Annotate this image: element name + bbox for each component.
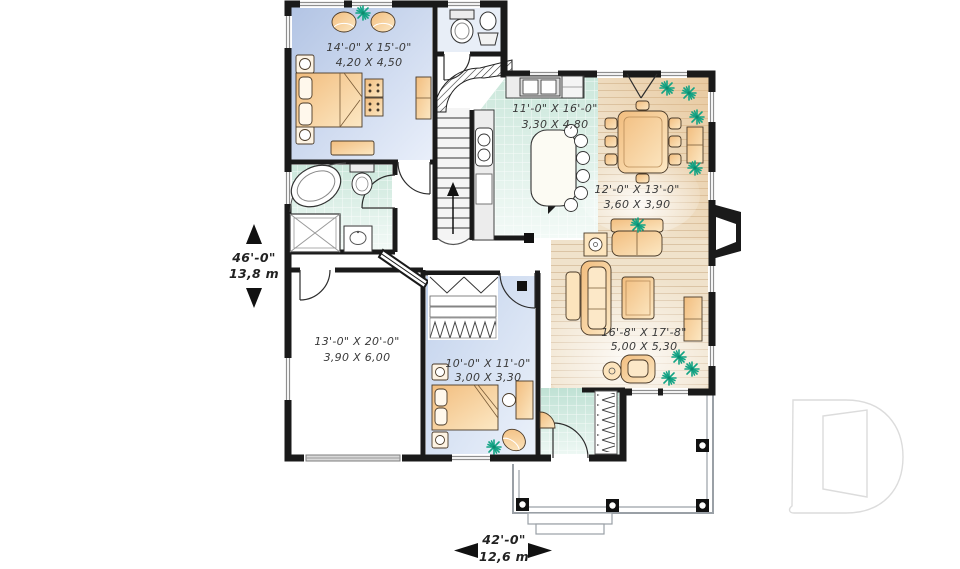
coffee-table-icon xyxy=(622,277,654,319)
window-icon xyxy=(300,0,344,8)
d-logo-watermark xyxy=(790,400,903,513)
porch-step xyxy=(528,513,612,524)
garage-door xyxy=(304,454,402,462)
end-table-icon xyxy=(584,233,607,256)
garage-dim-imperial: 13'-0" X 20'-0" xyxy=(314,335,399,348)
bedroom2-dim-metric: 3,00 X 3,30 xyxy=(455,371,522,384)
dining-table-icon xyxy=(618,111,668,173)
depth-dim-imperial: 46'-0" xyxy=(231,250,275,265)
floor-plan-page: 14'-0" X 15'-0" 4,20 X 4,50 11'-0" X 16'… xyxy=(0,0,960,569)
window-icon xyxy=(708,92,716,122)
sink-icon xyxy=(480,12,496,30)
tall-dresser-icon xyxy=(416,77,431,119)
toilet-icon xyxy=(350,164,374,195)
master-bedroom-dim-imperial: 14'-0" X 15'-0" xyxy=(326,41,411,54)
chair-icon xyxy=(669,118,681,129)
dimension-vertical: 46'-0" 13,8 m xyxy=(229,224,279,308)
arrow-right-icon xyxy=(528,543,552,558)
stool-icon xyxy=(575,187,588,200)
chair-icon xyxy=(605,154,617,165)
shower-icon xyxy=(290,214,340,252)
window-icon xyxy=(352,0,392,8)
dimension-horizontal: 42'-0" 12,6 m xyxy=(454,532,552,564)
refrigerator-icon xyxy=(562,76,583,98)
bed-icon xyxy=(296,73,362,127)
post xyxy=(517,281,527,291)
living-room-dim-metric: 5,00 X 5,30 xyxy=(611,340,678,353)
bed-icon xyxy=(432,385,498,430)
window-icon xyxy=(284,172,292,204)
chair-icon xyxy=(669,154,681,165)
dining-room-dim-metric: 3,60 X 3,90 xyxy=(604,198,671,211)
bedroom2-dim-imperial: 10'-0" X 11'-0" xyxy=(445,357,530,370)
window-icon xyxy=(452,454,490,462)
window-icon xyxy=(708,346,716,366)
sofa-icon xyxy=(581,261,611,335)
chair-icon xyxy=(669,136,681,147)
round-table-icon xyxy=(603,362,621,380)
window-icon xyxy=(284,358,292,400)
toilet-icon xyxy=(450,10,474,19)
window-icon xyxy=(663,388,688,396)
chair-icon xyxy=(605,136,617,147)
arrow-left-icon xyxy=(454,543,478,558)
stool-icon xyxy=(577,170,590,183)
nightstand-icon xyxy=(432,432,448,448)
window-icon xyxy=(708,266,716,292)
dishwasher-icon xyxy=(476,174,492,204)
vanity-sink-icon xyxy=(344,226,372,252)
closet-rod-icon xyxy=(430,318,496,338)
armchair-icon xyxy=(621,355,655,383)
ottoman-icon xyxy=(566,272,580,320)
stool-icon xyxy=(575,135,588,148)
dining-room-dim-imperial: 12'-0" X 13'-0" xyxy=(594,183,679,196)
width-dim-imperial: 42'-0" xyxy=(481,532,525,547)
window-icon xyxy=(448,0,480,8)
buffet-icon xyxy=(687,127,703,163)
nightstand-icon xyxy=(296,126,314,144)
arrow-down-icon xyxy=(246,288,262,308)
kitchen-sink-icon xyxy=(476,128,493,166)
tv-cabinet-icon xyxy=(684,297,702,341)
window-icon xyxy=(632,388,658,396)
window-icon xyxy=(284,16,292,48)
chair-icon xyxy=(636,101,649,110)
stool-icon xyxy=(565,199,578,212)
kitchen-dim-metric: 3,30 X 4,80 xyxy=(522,118,589,131)
armchair-icon xyxy=(332,12,356,32)
floor-plan-canvas: 14'-0" X 15'-0" 4,20 X 4,50 11'-0" X 16'… xyxy=(0,0,960,569)
arrow-up-icon xyxy=(246,224,262,244)
armchair-icon xyxy=(371,12,395,32)
garage-dim-metric: 3,90 X 6,00 xyxy=(324,351,391,364)
window-icon xyxy=(597,70,623,78)
front-door-opening xyxy=(551,454,589,462)
chair-icon xyxy=(605,118,617,129)
post xyxy=(524,233,534,243)
living-room-dim-imperial: 16'-8" X 17'-8" xyxy=(601,326,686,339)
depth-dim-metric: 13,8 m xyxy=(229,266,279,281)
fireplace xyxy=(712,204,741,259)
window-icon xyxy=(708,172,716,200)
bench-icon xyxy=(331,141,374,155)
master-bedroom-door xyxy=(398,162,430,194)
closet-rod-icon xyxy=(597,393,615,452)
width-dim-metric: 12,6 m xyxy=(479,549,529,564)
window-icon xyxy=(661,70,687,78)
stool-icon xyxy=(577,152,590,165)
stove-icon xyxy=(520,78,560,96)
chair-icon xyxy=(636,174,649,183)
kitchen-dim-imperial: 11'-0" X 16'-0" xyxy=(512,102,597,115)
nightstand-icon xyxy=(296,55,314,73)
master-bedroom-dim-metric: 4,20 X 4,50 xyxy=(336,56,403,69)
porch-step xyxy=(536,524,604,534)
garage-door-interior xyxy=(300,270,330,300)
